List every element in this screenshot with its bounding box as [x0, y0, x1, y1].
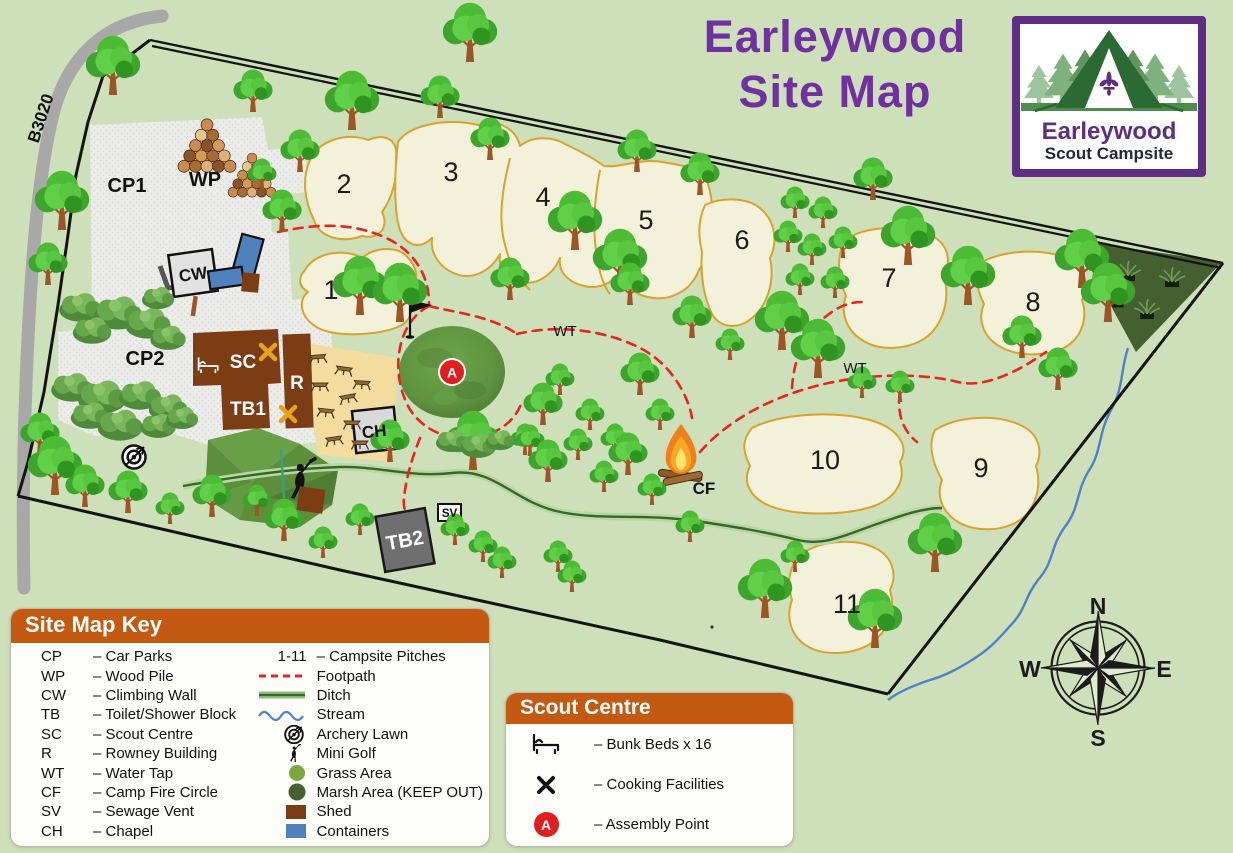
logo-name: Earleywood	[1020, 119, 1198, 144]
pitch-5-label: 5	[638, 205, 653, 235]
key-row-tb: TB– Toilet/Shower Block	[17, 705, 249, 724]
key-code: TB	[41, 706, 93, 723]
marsh-area-icon	[287, 783, 307, 801]
scout-centre-header: Scout Centre	[506, 693, 793, 724]
stream-swatch	[257, 708, 307, 722]
pitch-1-label: 1	[323, 275, 338, 305]
tb1-label: TB1	[230, 399, 266, 420]
pitch-6-label: 6	[734, 225, 749, 255]
key-row-ditch: Ditch	[249, 686, 483, 705]
key-row-marsh: Marsh Area (KEEP OUT)	[249, 783, 483, 802]
key-label: – Camp Fire Circle	[93, 784, 218, 801]
site-map-key: Site Map Key CP– Car Parks WP– Wood Pile…	[10, 608, 490, 847]
pitch-9-label: 9	[973, 453, 988, 483]
key-row-grass: Grass Area	[249, 763, 483, 782]
wp-label: WP	[189, 169, 221, 191]
key-code: CW	[41, 687, 93, 704]
archery-target-icon	[122, 445, 145, 468]
key-label: Footpath	[317, 668, 376, 685]
cp2-label: CP2	[126, 348, 165, 370]
compass-east: E	[1156, 656, 1171, 682]
key-label: – Scout Centre	[93, 726, 193, 743]
logo-subtitle: Scout Campsite	[1020, 144, 1198, 164]
map-dot	[710, 625, 713, 628]
shed-icon	[285, 804, 307, 820]
small-shed	[241, 272, 260, 292]
campsite-logo: Earleywood Scout Campsite	[1012, 16, 1206, 177]
key-row-sc: SC– Scout Centre	[17, 725, 249, 744]
scout-row-cooking: – Cooking Facilities	[506, 765, 793, 804]
pitch-2-label: 2	[336, 169, 351, 199]
scout-row-label: – Bunk Beds x 16	[594, 736, 712, 753]
page-title: Earleywood Site Map	[645, 10, 1025, 120]
key-row-stream: Stream	[249, 705, 483, 724]
key-label: – Campsite Pitches	[317, 648, 446, 665]
key-row-cw: CW– Climbing Wall	[17, 686, 249, 705]
key-label: Archery Lawn	[317, 726, 409, 743]
scout-row-label: – Assembly Point	[594, 816, 709, 833]
wt-label-1: WT	[553, 323, 576, 340]
pitch-4-label: 4	[535, 182, 550, 212]
scout-centre-key: Scout Centre – Bunk Beds x 16 – Cooking …	[505, 692, 794, 847]
scout-row-bunk-beds: – Bunk Beds x 16	[506, 725, 793, 764]
pitch-3-label: 3	[443, 157, 458, 187]
key-left-column: CP– Car Parks WP– Wood Pile CW– Climbing…	[17, 647, 249, 841]
key-code: CH	[41, 823, 93, 840]
ch-label: CH	[361, 421, 387, 442]
key-row-shed: Shed	[249, 802, 483, 821]
cw-label: CW	[178, 263, 210, 286]
pitch-11-label: 11	[833, 589, 861, 619]
sv-label: SV	[442, 508, 458, 520]
scout-row-assembly: A – Assembly Point	[506, 805, 793, 844]
key-row-pitches: 1-11 – Campsite Pitches	[249, 647, 483, 666]
compass-south: S	[1090, 725, 1105, 751]
key-label: – Car Parks	[93, 648, 172, 665]
key-label: Mini Golf	[317, 745, 376, 762]
key-label: Grass Area	[317, 765, 392, 782]
cp1-label: CP1	[108, 175, 147, 197]
logo-graphic	[1021, 24, 1197, 116]
compass-north: N	[1090, 593, 1107, 619]
compass-west: W	[1019, 656, 1041, 682]
key-row-cf: CF– Camp Fire Circle	[17, 783, 249, 802]
cooking-icon	[535, 774, 557, 796]
sc-label: SC	[230, 352, 257, 373]
key-label: – Rowney Building	[93, 745, 217, 762]
archery-lawn-icon	[281, 725, 307, 744]
key-row-containers: Containers	[249, 822, 483, 841]
key-label: Marsh Area (KEEP OUT)	[317, 784, 483, 801]
assembly-point-marker: A	[439, 359, 465, 385]
key-label: – Toilet/Shower Block	[93, 706, 236, 723]
assembly-point-letter: A	[447, 365, 457, 381]
containers-icon	[285, 823, 307, 839]
key-code: WT	[41, 765, 93, 782]
site-map-page: A	[0, 0, 1233, 853]
key-row-footpath: Footpath	[249, 666, 483, 685]
key-label: – Climbing Wall	[93, 687, 197, 704]
key-code: CP	[41, 648, 93, 665]
key-code: R	[41, 745, 93, 762]
key-label: – Chapel	[93, 823, 153, 840]
pitch-10-label: 10	[810, 445, 840, 475]
key-code: SC	[41, 726, 93, 743]
key-label: Containers	[317, 823, 390, 840]
key-row-cp: CP– Car Parks	[17, 647, 249, 666]
key-label: Stream	[317, 706, 365, 723]
ditch-swatch	[257, 690, 307, 700]
wt-label-2: WT	[843, 360, 866, 377]
key-label: – Sewage Vent	[93, 803, 194, 820]
key-row-wt: WT– Water Tap	[17, 763, 249, 782]
scout-row-label: – Cooking Facilities	[594, 776, 724, 793]
r-label: R	[290, 373, 304, 394]
key-label: – Wood Pile	[93, 668, 174, 685]
pitch-8-label: 8	[1025, 287, 1040, 317]
site-map-key-header: Site Map Key	[11, 609, 489, 643]
mini-golf-icon	[283, 744, 307, 763]
bunk-bed-icon	[529, 733, 563, 757]
key-label: Shed	[317, 803, 352, 820]
key-code: CF	[41, 784, 93, 801]
key-row-archery: Archery Lawn	[249, 725, 483, 744]
assembly-point-icon: A	[534, 812, 559, 837]
key-row-wp: WP– Wood Pile	[17, 666, 249, 685]
key-code: WP	[41, 668, 93, 685]
grass-area-icon	[287, 764, 307, 782]
footpath-swatch	[257, 671, 307, 681]
title-line-2: Site Map	[645, 65, 1025, 120]
key-row-minigolf: Mini Golf	[249, 744, 483, 763]
cf-label: CF	[693, 479, 716, 498]
golf-shed	[296, 486, 325, 513]
pitch-range-code: 1-11	[278, 648, 307, 665]
key-row-r: R– Rowney Building	[17, 744, 249, 763]
container-2	[208, 267, 244, 290]
key-label: Ditch	[317, 687, 351, 704]
key-code: SV	[41, 803, 93, 820]
key-row-sv: SV– Sewage Vent	[17, 802, 249, 821]
key-label: – Water Tap	[93, 765, 173, 782]
pitch-7-label: 7	[881, 263, 896, 293]
title-line-1: Earleywood	[645, 10, 1025, 65]
key-right-column: 1-11 – Campsite Pitches Footpath Ditch S…	[249, 647, 483, 841]
key-row-ch: CH– Chapel	[17, 822, 249, 841]
